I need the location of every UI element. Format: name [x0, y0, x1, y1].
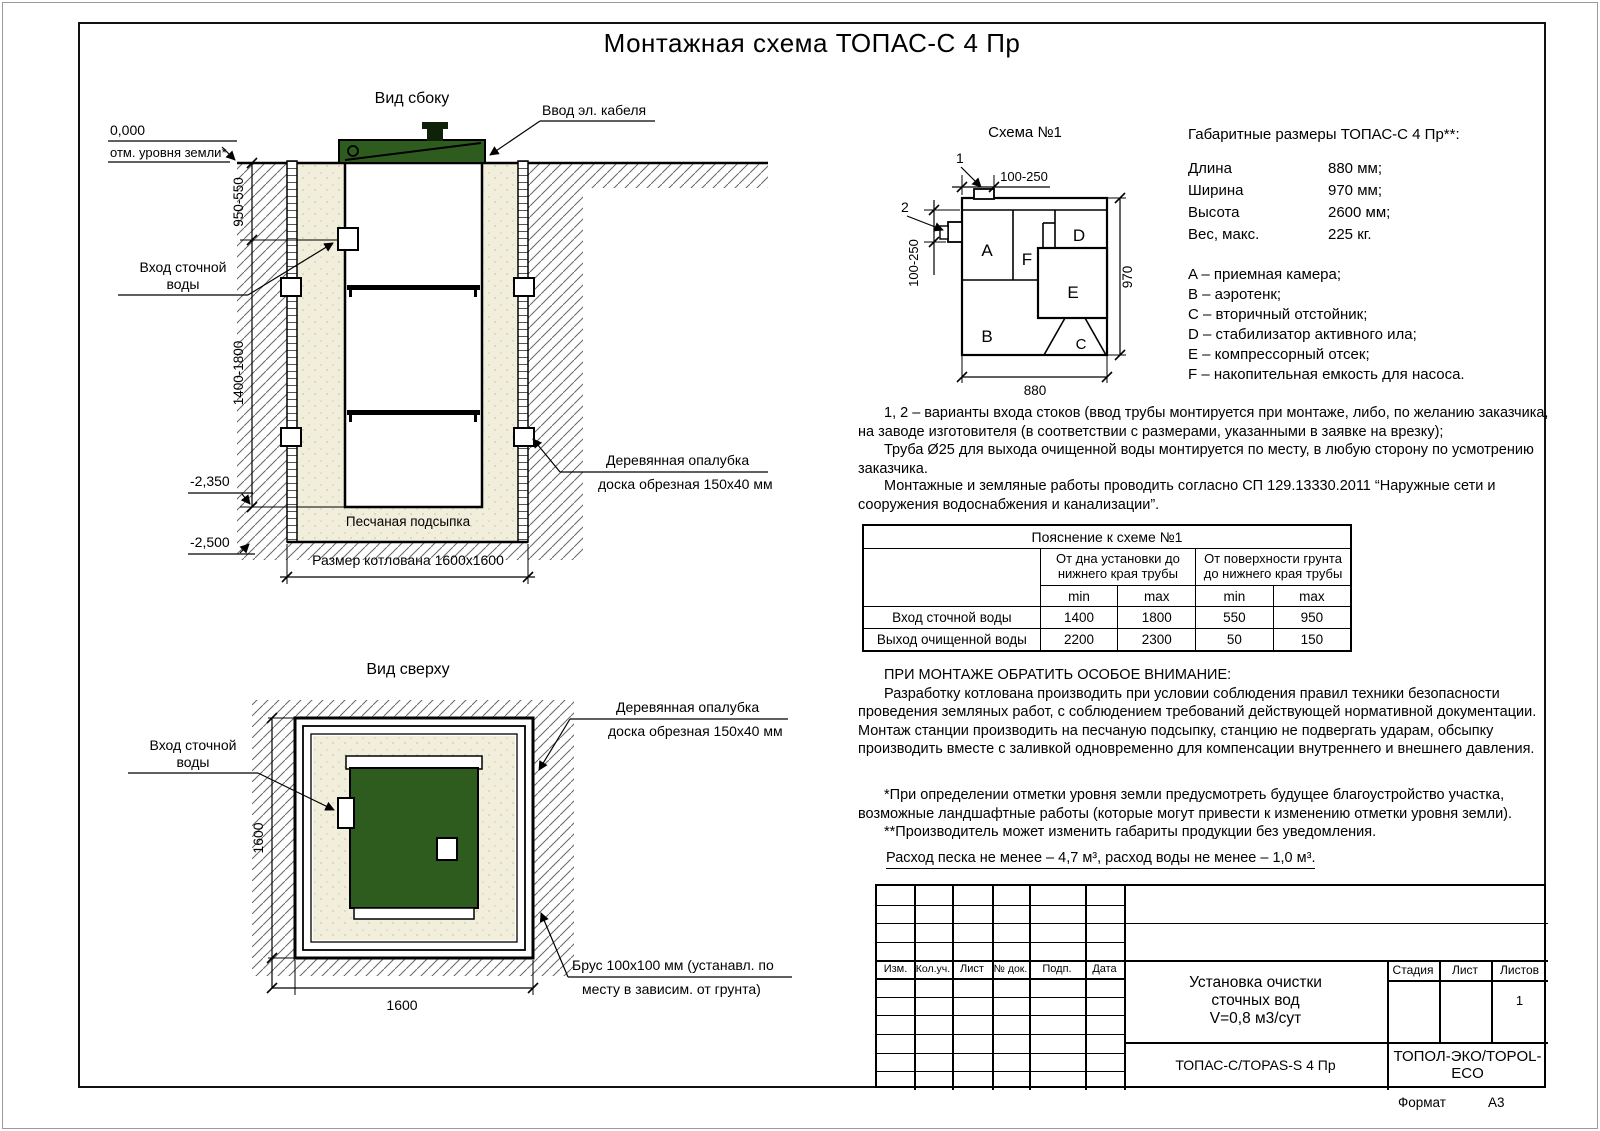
footnotes-block: *При определении отметки уровня земли пр…	[858, 786, 1550, 842]
schema-marker-1: 1	[956, 150, 964, 166]
top-view-drawing: Вид сверху 1600 1600	[120, 650, 800, 1020]
schema-dim-bottom	[957, 355, 1112, 383]
inlet-fitting-topview	[338, 798, 354, 828]
dim-950-550: 950-550	[231, 177, 246, 227]
lid-screw	[348, 146, 358, 156]
dim-1600-side: 1600	[250, 822, 266, 853]
legend-item: C – вторичный отстойник;	[1188, 306, 1560, 326]
table-corner-cell	[863, 549, 1040, 607]
page-title: Монтажная схема ТОПАС-С 4 Пр	[78, 28, 1546, 59]
schema-dim-right-label: 970	[1120, 266, 1135, 289]
inlet-stub-2	[948, 222, 962, 242]
compartment-legend: A – приемная камера; B – аэротенк; C – в…	[1188, 266, 1560, 386]
legend-item: E – компрессорный отсек;	[1188, 346, 1560, 366]
stamp-sheet-label: Лист	[1439, 960, 1491, 980]
cable-leader	[490, 121, 655, 155]
compartment-d: D	[1073, 226, 1085, 245]
spec-row: Длина880 мм;	[1188, 160, 1560, 182]
specs-block: Габаритные размеры ТОПАС-С 4 Пр**: Длина…	[1188, 126, 1560, 386]
table-group-1: От дна установки до нижнего края трубы	[1040, 549, 1195, 586]
compartment-b: B	[981, 327, 992, 346]
attention-block: ПРИ МОНТАЖЕ ОБРАТИТЬ ОСОБОЕ ВНИМАНИЕ: Ра…	[858, 666, 1550, 759]
inlet-label-topview-2: воды	[177, 754, 210, 770]
table-row: Вход сточной воды 1400 1800 550 950	[863, 607, 1351, 629]
top-view-title: Вид сверху	[366, 661, 449, 678]
specs-title: Габаритные размеры ТОПАС-С 4 Пр**:	[1188, 126, 1560, 144]
stamp-col-koluch: Кол.уч.	[914, 960, 952, 978]
schema-marker-2: 2	[901, 199, 909, 215]
formwork-label-topview-2: доска обрезная 150х40 мм	[608, 723, 783, 739]
inlet-label-1: Вход сточной	[140, 259, 227, 275]
schema-title: Схема №1	[988, 124, 1062, 141]
spec-row: Ширина970 мм;	[1188, 182, 1560, 204]
side-view-drawing: Вид сбоку	[90, 85, 790, 600]
stamp-sheets-label: Листов	[1491, 960, 1548, 980]
note-variants: 1, 2 – варианты входа стоков (ввод трубы…	[858, 404, 1550, 478]
pit-size-label: Размер котлована 1600х1600	[312, 552, 504, 568]
stamp-col-podp: Подп.	[1029, 960, 1085, 978]
format-value: А3	[1488, 1095, 1505, 1110]
formwork-label-1: Деревянная опалубка	[606, 452, 749, 468]
dim-1400-1800: 1400-1800	[231, 341, 246, 406]
compartment-e: E	[1067, 283, 1078, 302]
level-zero-note: отм. уровня земли*	[110, 145, 227, 160]
legend-item: D – стабилизатор активного ила;	[1188, 326, 1560, 346]
legend-item: F – накопительная емкость для насоса.	[1188, 366, 1560, 386]
stamp-col-izm: Изм.	[877, 960, 914, 978]
stamp-col-ndok: № док.	[992, 960, 1029, 978]
level-2350-label: -2,350	[190, 473, 230, 489]
side-view-title: Вид сбоку	[375, 90, 450, 107]
stamp-stage-label: Стадия	[1387, 960, 1439, 980]
stamp-doc-title: Установка очистки сточных вод V=0,8 м3/с…	[1124, 960, 1387, 1042]
tank-body	[345, 163, 482, 507]
formwork-label-2: доска обрезная 150х40 мм	[598, 476, 773, 492]
sand-bedding-label: Песчаная подсыпка	[346, 514, 471, 529]
compartment-a: A	[981, 241, 993, 260]
legend-item: A – приемная камера;	[1188, 266, 1560, 286]
inlet-fitting	[338, 228, 358, 250]
table-row: Выход очищенной воды 2200 2300 50 150	[863, 629, 1351, 652]
inlet-label-2: воды	[167, 276, 200, 292]
attention-heading: ПРИ МОНТАЖЕ ОБРАТИТЬ ОСОБОЕ ВНИМАНИЕ:	[858, 666, 1550, 685]
consumption-note: Расход песка не менее – 4,7 м³, расход в…	[886, 850, 1315, 869]
spec-row: Высота2600 мм;	[1188, 204, 1560, 226]
drawing-sheet: Монтажная схема ТОПАС-С 4 Пр Вид сбоку	[0, 0, 1600, 1131]
stamp-col-list: Лист	[952, 960, 992, 978]
schema-1-drawing: Схема №1 A F D E B C 100-250	[860, 115, 1180, 405]
table-title: Пояснение к схеме №1	[863, 525, 1351, 549]
lid-edge-bottom	[354, 908, 474, 919]
brus-label-2: месту в зависим. от грунта)	[582, 981, 761, 997]
stamp-col-data: Дата	[1085, 960, 1124, 978]
inlet-label-topview-1: Вход сточной	[150, 737, 237, 753]
formwork-right	[518, 161, 528, 542]
formwork-left	[287, 161, 297, 542]
cable-label: Ввод эл. кабеля	[542, 102, 646, 118]
compartment-c: C	[1076, 336, 1087, 353]
dim-1600-bottom: 1600	[386, 997, 417, 1013]
title-block: Изм. Кол.уч. Лист № док. Подп. Дата Уста…	[875, 884, 1546, 1088]
formwork-label-topview-1: Деревянная опалубка	[616, 699, 759, 715]
schema-dim-bottom-label: 880	[1024, 383, 1047, 398]
note-sp: Монтажные и земляные работы проводить со…	[858, 477, 1550, 514]
service-hatch	[437, 838, 457, 860]
schema-note-table-wrap: Пояснение к схеме №1 От дна установки до…	[862, 524, 1352, 652]
schema-dim-top-label: 100-250	[1000, 169, 1048, 184]
level-zero-label: 0,000	[110, 122, 145, 138]
stamp-company: ТОПОЛ-ЭКО/TOPOL-ECO	[1387, 1042, 1548, 1088]
stamp-sheets-value: 1	[1491, 980, 1548, 1020]
attention-body: Разработку котлована производить при усл…	[858, 685, 1550, 759]
stamp-model: ТОПАС-С/TOPAS-S 4 Пр	[1124, 1042, 1387, 1088]
unit-top-view	[350, 768, 478, 908]
spec-row: Вес, макс.225 кг.	[1188, 226, 1560, 248]
compartment-f: F	[1022, 250, 1032, 269]
inlet-stub-2b	[940, 226, 948, 239]
legend-item: B – аэротенк;	[1188, 286, 1560, 306]
schema-dim-left-label: 100-250	[906, 239, 921, 287]
schema-note-table: Пояснение к схеме №1 От дна установки до…	[862, 524, 1352, 652]
table-group-2: От поверхности грунта до нижнего края тр…	[1196, 549, 1351, 586]
format-label: Формат	[1398, 1095, 1446, 1110]
vent-cap	[422, 122, 448, 141]
brus-label-1: Брус 100х100 мм (устанавл. по	[572, 957, 774, 973]
level-2500-label: -2,500	[190, 534, 230, 550]
